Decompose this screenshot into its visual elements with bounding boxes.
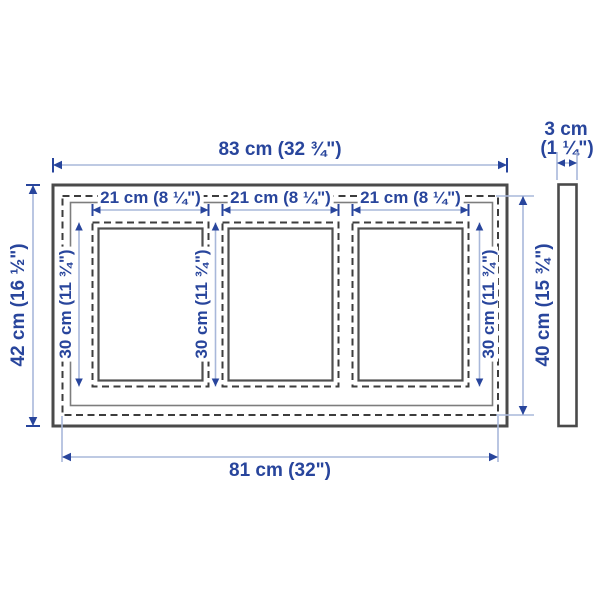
back-height-label: 40 cm (15 ¾") — [534, 243, 554, 366]
frame-dimension-diagram: 83 cm (32 ¾") 42 cm (16 ½") 81 cm (32") … — [0, 0, 600, 600]
overall-height-label: 42 cm (16 ½") — [9, 243, 29, 366]
dimension-labels: 83 cm (32 ¾") 42 cm (16 ½") 81 cm (32") … — [0, 0, 600, 600]
opening-height-label-2: 30 cm (11 ¾") — [193, 246, 211, 361]
overall-width-label: 83 cm (32 ¾") — [218, 140, 341, 160]
depth-label-inches: (1 ¼") — [540, 139, 593, 159]
back-width-label: 81 cm (32") — [229, 461, 331, 481]
depth-label-cm: 3 cm — [544, 120, 587, 140]
opening-width-label-3: 21 cm (8 ¼") — [357, 189, 464, 207]
opening-width-label-2: 21 cm (8 ¼") — [227, 189, 334, 207]
opening-width-label-1: 21 cm (8 ¼") — [97, 189, 204, 207]
opening-height-label-3: 30 cm (11 ¾") — [480, 246, 498, 361]
opening-height-label-1: 30 cm (11 ¾") — [57, 246, 75, 361]
